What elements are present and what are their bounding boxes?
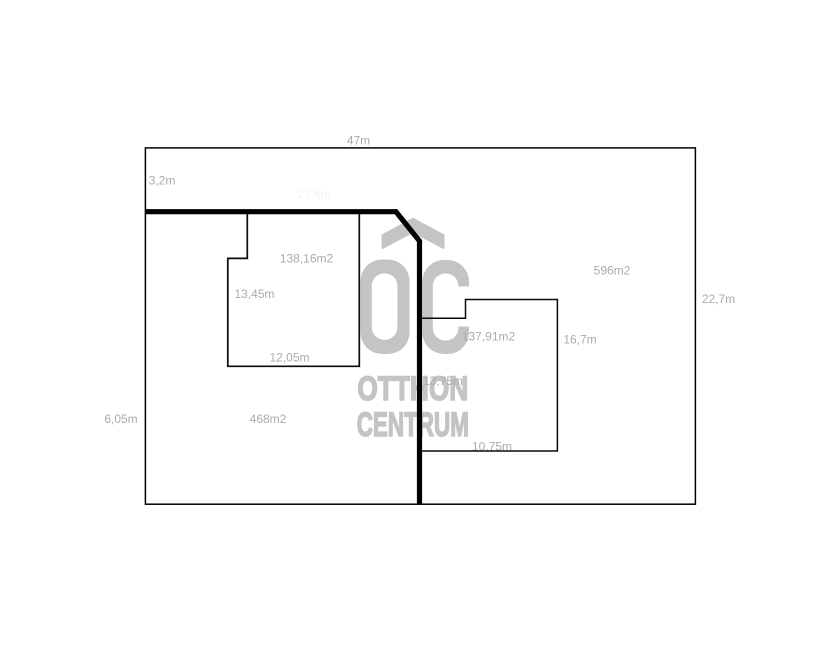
svg-text:16,7m: 16,7m	[563, 332, 596, 346]
svg-text:138,16m2: 138,16m2	[280, 251, 334, 265]
svg-text:22,7m: 22,7m	[702, 292, 735, 306]
svg-text:13,45m: 13,45m	[234, 287, 274, 301]
svg-text:3,2m: 3,2m	[149, 173, 176, 187]
svg-text:137,91m2: 137,91m2	[462, 329, 516, 343]
svg-text:6,05m: 6,05m	[104, 412, 137, 426]
svg-text:13,75m: 13,75m	[423, 374, 463, 388]
svg-text:23,6m: 23,6m	[297, 187, 330, 201]
svg-text:CENTRUM: CENTRUM	[357, 407, 469, 445]
svg-text:12,05m: 12,05m	[269, 350, 309, 364]
svg-text:596m2: 596m2	[594, 263, 631, 277]
svg-text:468m2: 468m2	[250, 412, 287, 426]
svg-text:47m: 47m	[347, 133, 370, 147]
